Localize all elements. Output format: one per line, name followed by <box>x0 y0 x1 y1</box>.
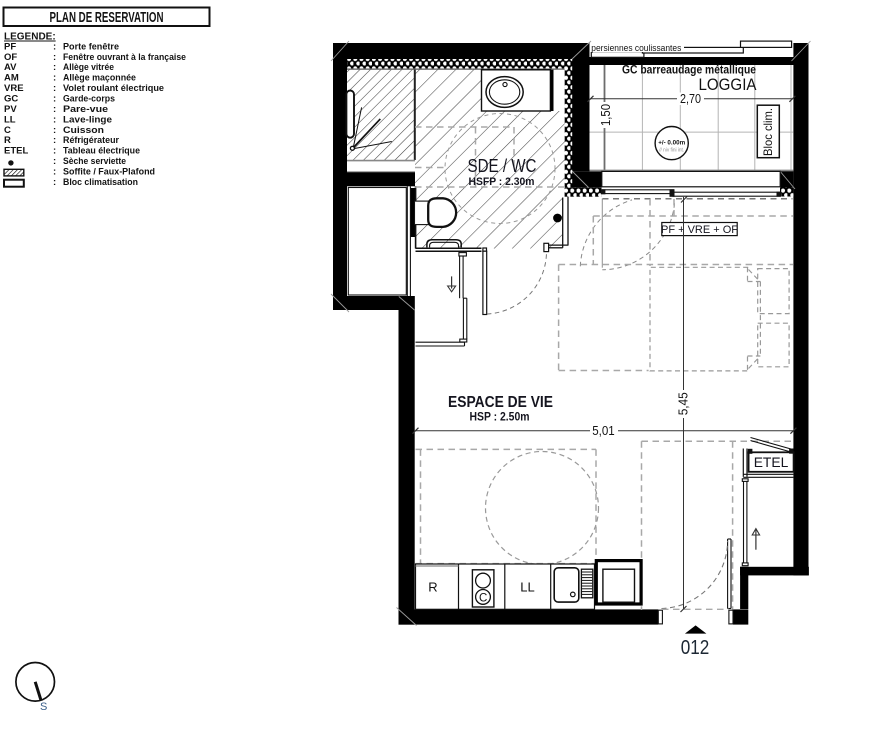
svg-text:GC: GC <box>4 94 18 105</box>
svg-text:Réfrigérateur: Réfrigérateur <box>63 135 119 146</box>
svg-text:Lave-linge: Lave-linge <box>63 114 112 125</box>
svg-text:OF: OF <box>4 52 17 63</box>
svg-text:ETEL: ETEL <box>4 146 28 157</box>
svg-text:Volet roulant électrique: Volet roulant électrique <box>63 83 164 94</box>
svg-text:012: 012 <box>681 636 710 659</box>
svg-text:Porte fenêtre: Porte fenêtre <box>63 41 119 52</box>
svg-text::: : <box>53 125 56 136</box>
svg-text::: : <box>53 104 56 115</box>
svg-text::: : <box>53 177 56 188</box>
svg-text:HSP : 2.50m: HSP : 2.50m <box>470 409 530 423</box>
svg-text::: : <box>53 73 56 84</box>
svg-text:PV: PV <box>4 104 17 115</box>
svg-text:SDE / WC: SDE / WC <box>468 155 537 176</box>
svg-text:PF + VRE + OF: PF + VRE + OF <box>661 224 738 236</box>
svg-text:AV: AV <box>4 62 17 73</box>
svg-text:1,50: 1,50 <box>598 104 613 126</box>
svg-text::: : <box>53 146 56 157</box>
svg-text:GC barreaudage métallique: GC barreaudage métallique <box>622 65 756 77</box>
svg-text:C: C <box>4 125 11 136</box>
svg-text::: : <box>53 166 56 177</box>
svg-text:Garde-corps: Garde-corps <box>63 94 115 105</box>
svg-text:Allège maçonnée: Allège maçonnée <box>63 73 136 84</box>
svg-text:S: S <box>40 701 47 713</box>
svg-text:R: R <box>4 135 11 146</box>
svg-text:PF: PF <box>4 41 16 52</box>
svg-text::: : <box>53 114 56 125</box>
svg-text::: : <box>53 94 56 105</box>
svg-text:Allège vitrée: Allège vitrée <box>63 62 114 73</box>
svg-text:persiennes coulissantes: persiennes coulissantes <box>591 43 682 53</box>
svg-text:VRE: VRE <box>4 83 24 94</box>
svg-text:Fenêtre ouvrant à la française: Fenêtre ouvrant à la française <box>63 52 186 63</box>
svg-text::: : <box>53 41 56 52</box>
svg-text:Sèche serviette: Sèche serviette <box>63 156 126 167</box>
svg-text:LOGGIA: LOGGIA <box>699 76 757 94</box>
svg-text::: : <box>53 135 56 146</box>
svg-text::: : <box>53 83 56 94</box>
svg-text:HSFP : 2.30m: HSFP : 2.30m <box>469 176 535 188</box>
svg-text:LL: LL <box>4 114 16 125</box>
svg-text:// niv fini int.: // niv fini int. <box>659 147 684 153</box>
svg-text:5,45: 5,45 <box>677 392 691 415</box>
svg-text:LL: LL <box>520 580 534 595</box>
svg-text:Cuisson: Cuisson <box>63 125 104 136</box>
svg-text:5,01: 5,01 <box>592 424 615 438</box>
svg-text::: : <box>53 156 56 167</box>
svg-text:Pare-vue: Pare-vue <box>63 104 108 115</box>
svg-text:ETEL: ETEL <box>754 454 789 470</box>
svg-text:+/- 0.00m: +/- 0.00m <box>658 139 685 146</box>
svg-text:Soffite / Faux-Plafond: Soffite / Faux-Plafond <box>63 166 155 177</box>
svg-text::: : <box>53 62 56 73</box>
svg-text:C: C <box>479 593 487 605</box>
svg-text::: : <box>53 52 56 63</box>
svg-text:Tableau électrique: Tableau électrique <box>63 146 140 157</box>
svg-text:R: R <box>428 580 437 595</box>
svg-text:Bloc climatisation: Bloc climatisation <box>63 177 138 188</box>
svg-text:Bloc clim.: Bloc clim. <box>761 108 775 156</box>
svg-text:AM: AM <box>4 73 19 84</box>
svg-text:PLAN DE RESERVATION: PLAN DE RESERVATION <box>50 10 164 26</box>
